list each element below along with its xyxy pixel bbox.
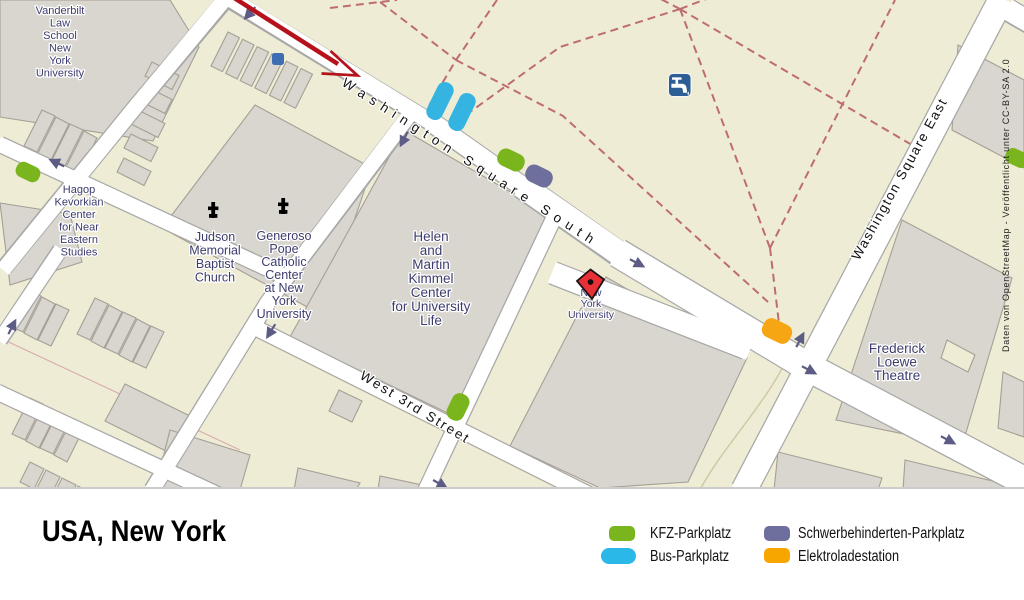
svg-text:University: University xyxy=(568,309,615,321)
svg-text:New: New xyxy=(49,43,71,55)
svg-text:Judson: Judson xyxy=(195,230,235,244)
svg-text:Daten von OpenStreetMap - Verö: Daten von OpenStreetMap - Veröffentlicht… xyxy=(1001,59,1011,352)
svg-text:Memorial: Memorial xyxy=(189,244,240,258)
svg-text:Catholic: Catholic xyxy=(261,255,306,269)
svg-text:and: and xyxy=(420,243,443,258)
svg-text:Church: Church xyxy=(195,271,235,285)
svg-text:York: York xyxy=(272,294,297,308)
svg-text:Studies: Studies xyxy=(61,247,98,259)
svg-text:Kimmel: Kimmel xyxy=(408,271,453,286)
svg-text:Hagop: Hagop xyxy=(63,184,95,196)
svg-text:Center: Center xyxy=(411,285,452,300)
svg-text:Generoso: Generoso xyxy=(257,229,312,243)
svg-text:Vanderbilt: Vanderbilt xyxy=(36,5,85,17)
svg-text:Center: Center xyxy=(265,268,303,282)
svg-text:York: York xyxy=(49,55,71,67)
svg-text:Martin: Martin xyxy=(412,257,450,272)
svg-text:University: University xyxy=(36,68,85,80)
svg-text:Kevorkian: Kevorkian xyxy=(55,197,104,209)
svg-text:School: School xyxy=(43,30,77,42)
svg-text:Pope: Pope xyxy=(269,242,298,256)
svg-text:Center: Center xyxy=(62,209,95,221)
svg-text:Theatre: Theatre xyxy=(874,368,921,383)
svg-text:Baptist: Baptist xyxy=(196,257,235,271)
svg-text:University: University xyxy=(257,307,313,321)
svg-text:for University: for University xyxy=(392,299,471,314)
svg-text:Eastern: Eastern xyxy=(60,234,98,246)
svg-text:Life: Life xyxy=(420,313,442,328)
svg-text:Law: Law xyxy=(50,18,70,30)
svg-text:for Near: for Near xyxy=(59,222,99,234)
svg-text:Helen: Helen xyxy=(413,229,448,244)
svg-text:at New: at New xyxy=(265,281,305,295)
